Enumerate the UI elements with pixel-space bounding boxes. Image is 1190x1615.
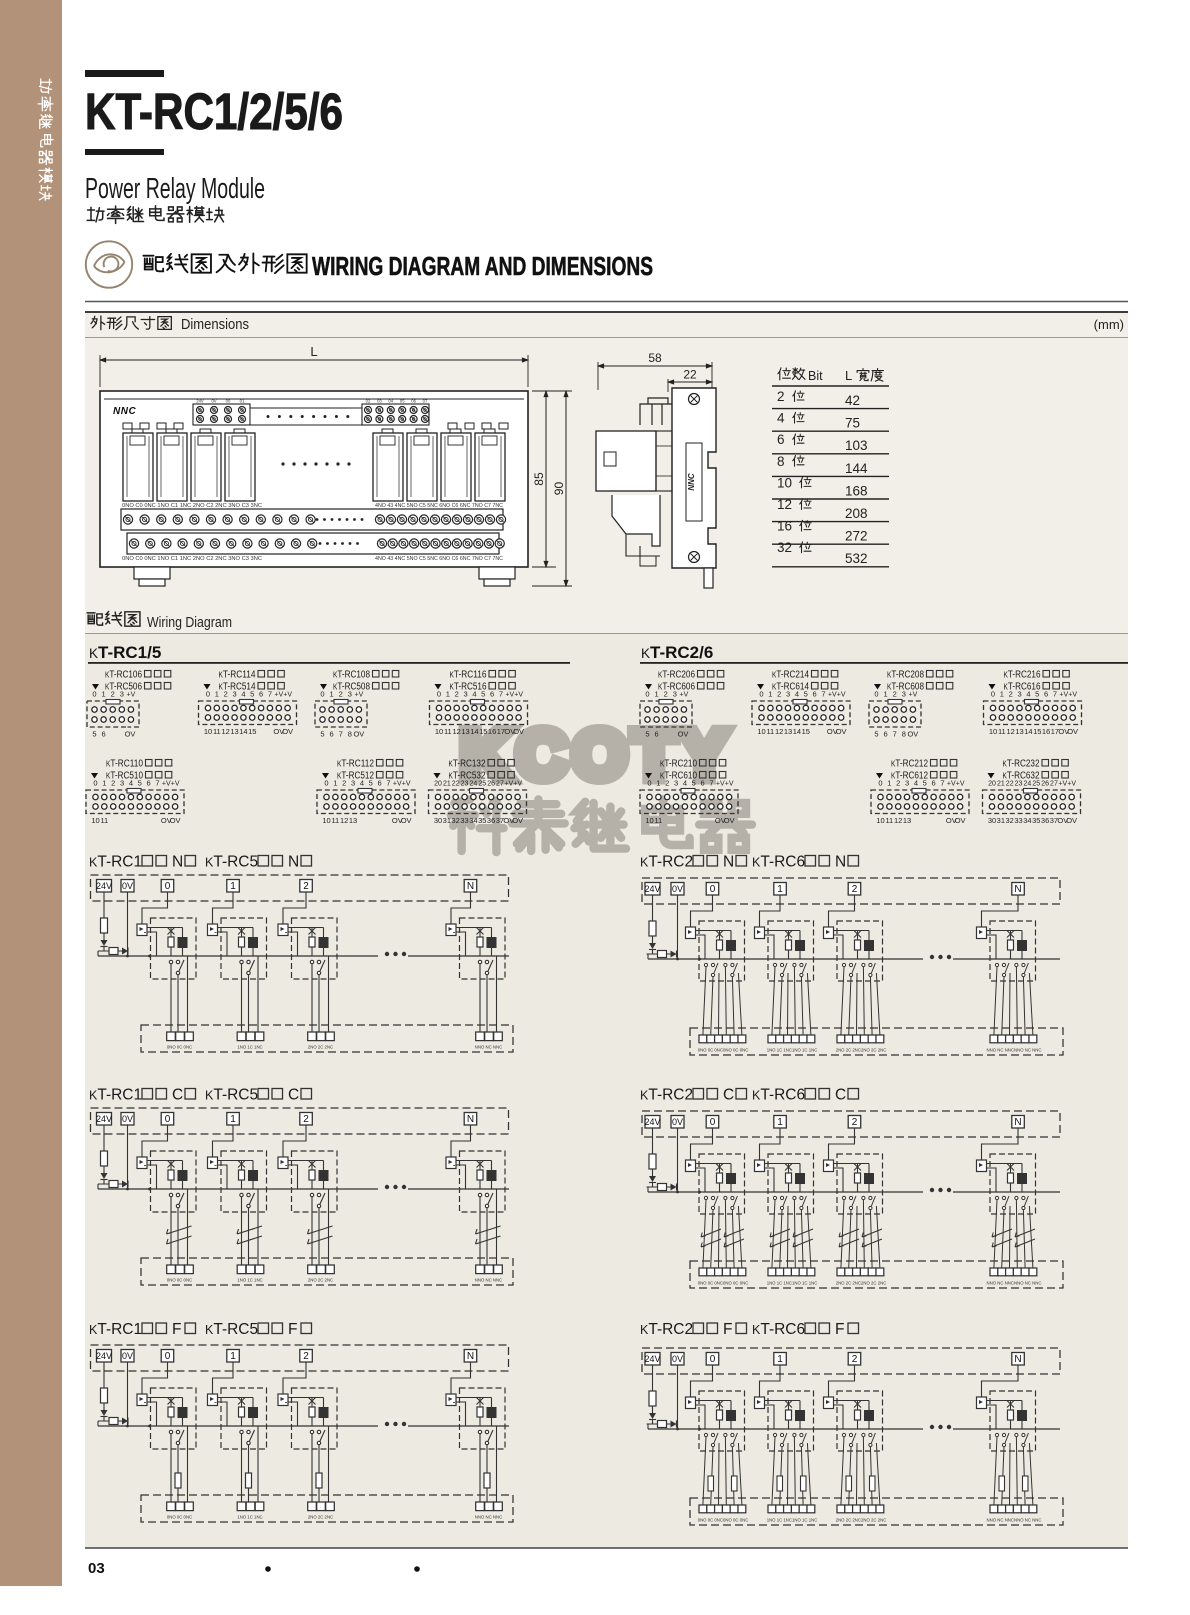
svg-text:5: 5 <box>481 690 485 699</box>
svg-text:0V: 0V <box>211 399 216 404</box>
svg-text:8: 8 <box>902 730 906 739</box>
svg-text:5: 5 <box>138 779 142 788</box>
svg-text:24V: 24V <box>644 1354 660 1364</box>
svg-text:11: 11 <box>766 727 774 736</box>
svg-text:F: F <box>288 1321 297 1338</box>
svg-text:16: 16 <box>777 519 792 534</box>
svg-text:4: 4 <box>472 690 476 699</box>
svg-text:23: 23 <box>461 781 469 788</box>
svg-text:12: 12 <box>775 727 783 736</box>
svg-text:10: 10 <box>876 816 884 825</box>
svg-text:23: 23 <box>1015 781 1023 788</box>
svg-text:35: 35 <box>478 816 486 825</box>
svg-text:3: 3 <box>348 690 352 699</box>
svg-text:6: 6 <box>932 779 936 788</box>
svg-text:7: 7 <box>1053 690 1057 699</box>
svg-text:OV: OV <box>401 816 412 825</box>
svg-text:6: 6 <box>330 730 334 739</box>
svg-text:0NO 0C 0NC: 0NO 0C 0NC <box>167 1045 192 1050</box>
svg-text:14: 14 <box>793 727 801 736</box>
svg-text:0: 0 <box>92 690 96 699</box>
svg-text:32: 32 <box>1006 816 1014 825</box>
svg-text:12: 12 <box>340 816 348 825</box>
svg-text:0NO 0C 0NC0NO 0C 0NC: 0NO 0C 0NC0NO 0C 0NC <box>698 1048 749 1053</box>
svg-text:34: 34 <box>1023 816 1031 825</box>
svg-text:22: 22 <box>683 368 697 382</box>
svg-text:168: 168 <box>845 483 868 498</box>
svg-text:6: 6 <box>102 730 106 739</box>
svg-text:42: 42 <box>845 393 860 408</box>
svg-text:4: 4 <box>1026 690 1030 699</box>
svg-text:Wiring Diagram: Wiring Diagram <box>147 614 232 631</box>
svg-text:24V: 24V <box>96 881 112 891</box>
svg-text:NNO NC NNCNNO NC NNC: NNO NC NNCNNO NC NNC <box>987 1048 1042 1053</box>
svg-text:5: 5 <box>369 779 373 788</box>
svg-text:+V: +V <box>716 781 725 788</box>
svg-text:KT-RC1: KT-RC1 <box>89 1087 142 1104</box>
svg-text:+V: +V <box>274 692 283 699</box>
svg-text:11: 11 <box>100 816 108 825</box>
svg-text:+V: +V <box>283 692 292 699</box>
svg-text:0NO C0 0NC 1NO C1 1NC 2NO C2 2: 0NO C0 0NC 1NO C1 1NC 2NO C2 2NC 3NO C3 … <box>122 556 262 562</box>
svg-text:N: N <box>288 854 299 871</box>
svg-text:KT-RC110: KT-RC110 <box>106 759 143 770</box>
svg-text:N: N <box>1014 1354 1021 1365</box>
svg-text:OV: OV <box>907 730 918 739</box>
svg-text:KT-RC5: KT-RC5 <box>205 1087 258 1104</box>
svg-text:1: 1 <box>1000 690 1004 699</box>
svg-text:KT-RC1: KT-RC1 <box>89 854 142 871</box>
svg-text:2NO 2C 2NC: 2NO 2C 2NC <box>308 1278 333 1283</box>
svg-text:(mm): (mm) <box>1094 317 1124 332</box>
svg-text:OV: OV <box>512 816 523 825</box>
svg-text:KT-RC106: KT-RC106 <box>105 670 142 681</box>
svg-text:6: 6 <box>655 730 659 739</box>
svg-text:0V: 0V <box>672 1117 683 1127</box>
svg-text:+V: +V <box>680 692 689 699</box>
svg-text:OV: OV <box>1067 727 1078 736</box>
svg-text:+V: +V <box>514 692 523 699</box>
svg-text:5: 5 <box>692 779 696 788</box>
svg-text:KT-RC6: KT-RC6 <box>752 854 805 871</box>
svg-text:F: F <box>723 1321 732 1338</box>
svg-text:3: 3 <box>902 690 906 699</box>
svg-text:2: 2 <box>339 690 343 699</box>
svg-text:2: 2 <box>893 690 897 699</box>
svg-text:1: 1 <box>887 779 891 788</box>
svg-text:N: N <box>172 854 183 871</box>
svg-text:+V: +V <box>171 781 180 788</box>
svg-text:11: 11 <box>213 727 221 736</box>
svg-text:31: 31 <box>443 816 451 825</box>
svg-text:0V: 0V <box>122 1351 133 1361</box>
svg-text:33: 33 <box>460 816 468 825</box>
svg-text:+V: +V <box>725 781 734 788</box>
svg-text:+V: +V <box>1059 692 1068 699</box>
svg-text:13: 13 <box>230 727 238 736</box>
svg-text:6: 6 <box>1044 690 1048 699</box>
svg-text:208: 208 <box>845 506 868 521</box>
svg-text:0NO C0 0NC 1NO C1 1NC 2NO C2 2: 0NO C0 0NC 1NO C1 1NC 2NO C2 2NC 3NO C3 … <box>122 503 262 509</box>
svg-text:0: 0 <box>710 1354 716 1365</box>
svg-text:16: 16 <box>1042 727 1050 736</box>
svg-text:5: 5 <box>645 730 649 739</box>
svg-text:KT-RC2: KT-RC2 <box>640 1321 693 1338</box>
svg-text:26: 26 <box>487 781 495 788</box>
svg-text:12: 12 <box>453 727 461 736</box>
svg-text:24V: 24V <box>196 399 204 404</box>
svg-text:C: C <box>835 1087 846 1104</box>
svg-text:7: 7 <box>499 690 503 699</box>
svg-text:+V: +V <box>909 692 918 699</box>
svg-text:+V: +V <box>1067 781 1076 788</box>
svg-text:NNO NC NNCNNO NC NNC: NNO NC NNCNNO NC NNC <box>987 1281 1042 1286</box>
svg-text:KT-RC112: KT-RC112 <box>337 759 374 770</box>
svg-text:11: 11 <box>654 816 662 825</box>
svg-text:2NO 2C 2NC: 2NO 2C 2NC <box>308 1045 333 1050</box>
svg-text:24V: 24V <box>644 1117 660 1127</box>
svg-text:5: 5 <box>320 730 324 739</box>
svg-text:0: 0 <box>165 881 171 892</box>
svg-text:22: 22 <box>452 781 460 788</box>
svg-text:0: 0 <box>324 779 328 788</box>
svg-text:1: 1 <box>884 690 888 699</box>
svg-text:58: 58 <box>648 351 662 365</box>
svg-text:2: 2 <box>896 779 900 788</box>
svg-text:6: 6 <box>378 779 382 788</box>
svg-text:KT-RC208: KT-RC208 <box>887 670 924 681</box>
svg-text:6: 6 <box>884 730 888 739</box>
svg-text:14: 14 <box>239 727 247 736</box>
svg-text:KT-RC5: KT-RC5 <box>205 854 258 871</box>
svg-text:KT-RC1/2/5/6: KT-RC1/2/5/6 <box>85 83 343 140</box>
svg-text:0: 0 <box>206 690 210 699</box>
svg-text:2: 2 <box>852 1354 858 1365</box>
svg-text:+V: +V <box>1058 781 1067 788</box>
svg-text:0: 0 <box>647 779 651 788</box>
svg-text:02: 02 <box>366 399 371 404</box>
svg-text:2: 2 <box>303 881 309 892</box>
svg-text:+V: +V <box>947 781 956 788</box>
svg-text:4: 4 <box>914 779 918 788</box>
svg-text:2NO 2C 2NC: 2NO 2C 2NC <box>308 1515 333 1520</box>
svg-text:1: 1 <box>330 690 334 699</box>
svg-text:30: 30 <box>988 816 996 825</box>
svg-text:1NO 1C 1NC1NO 1C 1NC: 1NO 1C 1NC1NO 1C 1NC <box>767 1048 818 1053</box>
svg-text:3: 3 <box>120 690 124 699</box>
svg-text:30: 30 <box>434 816 442 825</box>
svg-text:3: 3 <box>232 690 236 699</box>
svg-text:4: 4 <box>683 779 687 788</box>
svg-text:1: 1 <box>777 1354 783 1365</box>
svg-text:N: N <box>1014 884 1021 895</box>
svg-text:KT-RC1: KT-RC1 <box>89 1321 142 1338</box>
svg-text:2: 2 <box>665 779 669 788</box>
svg-text:15: 15 <box>479 727 487 736</box>
svg-text:+V: +V <box>837 692 846 699</box>
svg-text:1: 1 <box>333 779 337 788</box>
svg-text:7: 7 <box>386 779 390 788</box>
svg-text:10: 10 <box>322 816 330 825</box>
svg-text:15: 15 <box>802 727 810 736</box>
svg-text:OV: OV <box>724 816 735 825</box>
svg-text:+V: +V <box>504 781 513 788</box>
svg-text:NNC: NNC <box>113 406 136 417</box>
svg-text:0NO 0C 0NC: 0NO 0C 0NC <box>167 1278 192 1283</box>
svg-text:1: 1 <box>230 881 236 892</box>
svg-text:14: 14 <box>470 727 478 736</box>
svg-text:2: 2 <box>111 690 115 699</box>
svg-text:16: 16 <box>488 727 496 736</box>
svg-text:Bit: Bit <box>808 369 823 383</box>
svg-text:11: 11 <box>331 816 339 825</box>
svg-text:3: 3 <box>120 779 124 788</box>
svg-text:00: 00 <box>226 399 231 404</box>
svg-text:144: 144 <box>845 461 868 476</box>
svg-text:3: 3 <box>673 690 677 699</box>
svg-text:24: 24 <box>470 781 478 788</box>
svg-text:32: 32 <box>452 816 460 825</box>
svg-text:C: C <box>172 1087 183 1104</box>
svg-text:C: C <box>723 1087 734 1104</box>
svg-text:10: 10 <box>645 816 653 825</box>
svg-text:KT-RC1/5: KT-RC1/5 <box>89 643 161 662</box>
svg-text:0V: 0V <box>122 1114 133 1124</box>
svg-text:5: 5 <box>804 690 808 699</box>
svg-text:0: 0 <box>991 690 995 699</box>
svg-text:7: 7 <box>268 690 272 699</box>
svg-text:10: 10 <box>757 727 765 736</box>
svg-text:15: 15 <box>248 727 256 736</box>
svg-text:1: 1 <box>768 690 772 699</box>
svg-text:+V: +V <box>1068 692 1077 699</box>
svg-text:532: 532 <box>845 551 868 566</box>
svg-text:5: 5 <box>92 730 96 739</box>
svg-text:21: 21 <box>443 781 451 788</box>
svg-text:N: N <box>467 881 474 892</box>
svg-text:OV: OV <box>170 816 181 825</box>
svg-text:4: 4 <box>795 690 799 699</box>
svg-text:2: 2 <box>342 779 346 788</box>
svg-text:+V: +V <box>513 781 522 788</box>
svg-text:26: 26 <box>1041 781 1049 788</box>
svg-text:15: 15 <box>1033 727 1041 736</box>
svg-text:5: 5 <box>874 730 878 739</box>
svg-text:36: 36 <box>487 816 495 825</box>
svg-text:12: 12 <box>222 727 230 736</box>
svg-text:2: 2 <box>303 1114 309 1125</box>
svg-text:10: 10 <box>435 727 443 736</box>
svg-text:N: N <box>467 1351 474 1362</box>
svg-text:NNO NC NNC: NNO NC NNC <box>475 1515 502 1520</box>
svg-text:90: 90 <box>552 482 566 496</box>
svg-text:0V: 0V <box>122 881 133 891</box>
svg-text:2NO 2C 2NC2NO 2C 2NC: 2NO 2C 2NC2NO 2C 2NC <box>836 1518 887 1523</box>
svg-text:07: 07 <box>423 399 428 404</box>
svg-text:1NO 1C 1NC: 1NO 1C 1NC <box>237 1045 262 1050</box>
svg-text:05: 05 <box>400 399 405 404</box>
svg-text:11: 11 <box>444 727 452 736</box>
svg-text:2NO 2C 2NC2NO 2C 2NC: 2NO 2C 2NC2NO 2C 2NC <box>836 1281 887 1286</box>
svg-text:13: 13 <box>903 816 911 825</box>
svg-text:0NO 0C 0NC: 0NO 0C 0NC <box>167 1515 192 1520</box>
svg-text:2: 2 <box>455 690 459 699</box>
svg-text:24: 24 <box>1024 781 1032 788</box>
svg-text:8: 8 <box>777 454 785 469</box>
svg-text:NNC: NNC <box>687 473 696 491</box>
svg-text:10: 10 <box>204 727 212 736</box>
svg-text:7: 7 <box>155 779 159 788</box>
svg-text:Dimensions: Dimensions <box>181 317 249 333</box>
svg-text:0: 0 <box>874 690 878 699</box>
svg-text:N: N <box>1014 1117 1021 1128</box>
svg-text:0NO 0C 0NC0NO 0C 0NC: 0NO 0C 0NC0NO 0C 0NC <box>698 1281 749 1286</box>
svg-text:2: 2 <box>777 690 781 699</box>
svg-text:F: F <box>172 1321 181 1338</box>
svg-text:24V: 24V <box>96 1351 112 1361</box>
svg-text:2NO 2C 2NC2NO 2C 2NC: 2NO 2C 2NC2NO 2C 2NC <box>836 1048 887 1053</box>
svg-text:35: 35 <box>1032 816 1040 825</box>
svg-text:03: 03 <box>377 399 382 404</box>
svg-text:13: 13 <box>349 816 357 825</box>
svg-text:7: 7 <box>893 730 897 739</box>
svg-text:2: 2 <box>1009 690 1013 699</box>
svg-text:1: 1 <box>446 690 450 699</box>
svg-text:24V: 24V <box>96 1114 112 1124</box>
svg-text:103: 103 <box>845 438 868 453</box>
svg-text:0: 0 <box>165 1114 171 1125</box>
svg-text:2: 2 <box>664 690 668 699</box>
svg-text:34: 34 <box>469 816 477 825</box>
svg-text:1NO 1C 1NC: 1NO 1C 1NC <box>237 1515 262 1520</box>
svg-text:+V: +V <box>402 781 411 788</box>
svg-text:24V: 24V <box>644 884 660 894</box>
svg-text:6: 6 <box>777 432 785 447</box>
svg-text:2: 2 <box>852 1117 858 1128</box>
svg-text:5: 5 <box>923 779 927 788</box>
svg-text:4: 4 <box>777 411 785 426</box>
svg-text:NNO NC NNCNNO NC NNC: NNO NC NNCNNO NC NNC <box>987 1518 1042 1523</box>
svg-text:OV: OV <box>836 727 847 736</box>
svg-text:11: 11 <box>998 727 1006 736</box>
svg-text:+V: +V <box>956 781 965 788</box>
svg-text:0: 0 <box>878 779 882 788</box>
svg-text:KT-RC2: KT-RC2 <box>640 854 693 871</box>
svg-text:06: 06 <box>411 399 416 404</box>
svg-text:85: 85 <box>532 472 546 486</box>
svg-text:3: 3 <box>786 690 790 699</box>
svg-text:NNO NC NNC: NNO NC NNC <box>475 1045 502 1050</box>
svg-text:5: 5 <box>250 690 254 699</box>
svg-text:+V: +V <box>505 692 514 699</box>
svg-text:22: 22 <box>1006 781 1014 788</box>
svg-text:1: 1 <box>230 1351 236 1362</box>
svg-text:6: 6 <box>813 690 817 699</box>
svg-text:OV: OV <box>955 816 966 825</box>
svg-text:75: 75 <box>845 416 860 431</box>
svg-text:25: 25 <box>478 781 486 788</box>
svg-text:12: 12 <box>777 497 792 512</box>
svg-text:N: N <box>723 854 734 871</box>
svg-text:12: 12 <box>1007 727 1015 736</box>
svg-text:1: 1 <box>102 779 106 788</box>
svg-text:0V: 0V <box>672 884 683 894</box>
svg-text:OV: OV <box>353 730 364 739</box>
svg-text:Power Relay Module: Power Relay Module <box>85 173 265 205</box>
svg-text:04: 04 <box>388 399 393 404</box>
svg-text:1: 1 <box>655 690 659 699</box>
svg-text:OV: OV <box>1066 816 1077 825</box>
svg-text:KT-RC216: KT-RC216 <box>1004 670 1041 681</box>
svg-text:1NO 1C 1NC1NO 1C 1NC: 1NO 1C 1NC1NO 1C 1NC <box>767 1281 818 1286</box>
svg-text:272: 272 <box>845 529 868 544</box>
svg-text:+V: +V <box>355 692 364 699</box>
svg-text:1: 1 <box>102 690 106 699</box>
svg-text:03: 03 <box>88 1560 105 1577</box>
svg-text:0: 0 <box>320 690 324 699</box>
svg-text:2: 2 <box>224 690 228 699</box>
svg-text:0: 0 <box>437 690 441 699</box>
svg-text:OV: OV <box>282 727 293 736</box>
svg-text:20: 20 <box>434 781 442 788</box>
svg-text:1: 1 <box>230 1114 236 1125</box>
svg-text:3: 3 <box>674 779 678 788</box>
svg-text:1: 1 <box>656 779 660 788</box>
svg-text:4NO 43 4NC 5NO C5 5NC 6NO C6 6: 4NO 43 4NC 5NO C5 5NC 6NO C6 6NC 7NO C7 … <box>375 503 503 509</box>
svg-text:2: 2 <box>303 1351 309 1362</box>
svg-text:KT-RC114: KT-RC114 <box>219 670 256 681</box>
svg-text:32: 32 <box>777 540 792 555</box>
svg-text:33: 33 <box>1014 816 1022 825</box>
svg-text:7: 7 <box>339 730 343 739</box>
svg-text:13: 13 <box>784 727 792 736</box>
svg-text:7: 7 <box>821 690 825 699</box>
svg-text:0: 0 <box>759 690 763 699</box>
svg-text:36: 36 <box>1041 816 1049 825</box>
svg-text:13: 13 <box>461 727 469 736</box>
svg-text:13: 13 <box>1015 727 1023 736</box>
svg-text:0: 0 <box>710 1117 716 1128</box>
svg-text:7: 7 <box>940 779 944 788</box>
svg-text:3: 3 <box>351 779 355 788</box>
svg-text:11: 11 <box>885 816 893 825</box>
svg-text:2: 2 <box>777 389 785 404</box>
svg-text:0: 0 <box>645 690 649 699</box>
svg-text:10: 10 <box>989 727 997 736</box>
svg-text:6: 6 <box>490 690 494 699</box>
svg-text:6: 6 <box>147 779 151 788</box>
svg-text:27: 27 <box>1050 781 1058 788</box>
svg-text:L: L <box>310 344 317 359</box>
svg-text:KT-RC214: KT-RC214 <box>772 670 809 681</box>
svg-text:14: 14 <box>1024 727 1032 736</box>
svg-text:KT-RC210: KT-RC210 <box>660 759 697 770</box>
svg-text:10: 10 <box>91 816 99 825</box>
svg-text:0V: 0V <box>672 1354 683 1364</box>
svg-text:8: 8 <box>348 730 352 739</box>
svg-text:3: 3 <box>463 690 467 699</box>
svg-text:1: 1 <box>777 884 783 895</box>
svg-text:1NO 1C 1NC: 1NO 1C 1NC <box>237 1278 262 1283</box>
svg-text:KT-RC232: KT-RC232 <box>1003 759 1040 770</box>
svg-text:KT-RC212: KT-RC212 <box>891 759 928 770</box>
svg-text:01: 01 <box>240 399 245 404</box>
svg-text:C: C <box>288 1087 299 1104</box>
svg-text:0: 0 <box>165 1351 171 1362</box>
svg-text:1NO 1C 1NC1NO 1C 1NC: 1NO 1C 1NC1NO 1C 1NC <box>767 1518 818 1523</box>
svg-text:KT-RC108: KT-RC108 <box>333 670 370 681</box>
svg-text:L: L <box>845 368 852 383</box>
